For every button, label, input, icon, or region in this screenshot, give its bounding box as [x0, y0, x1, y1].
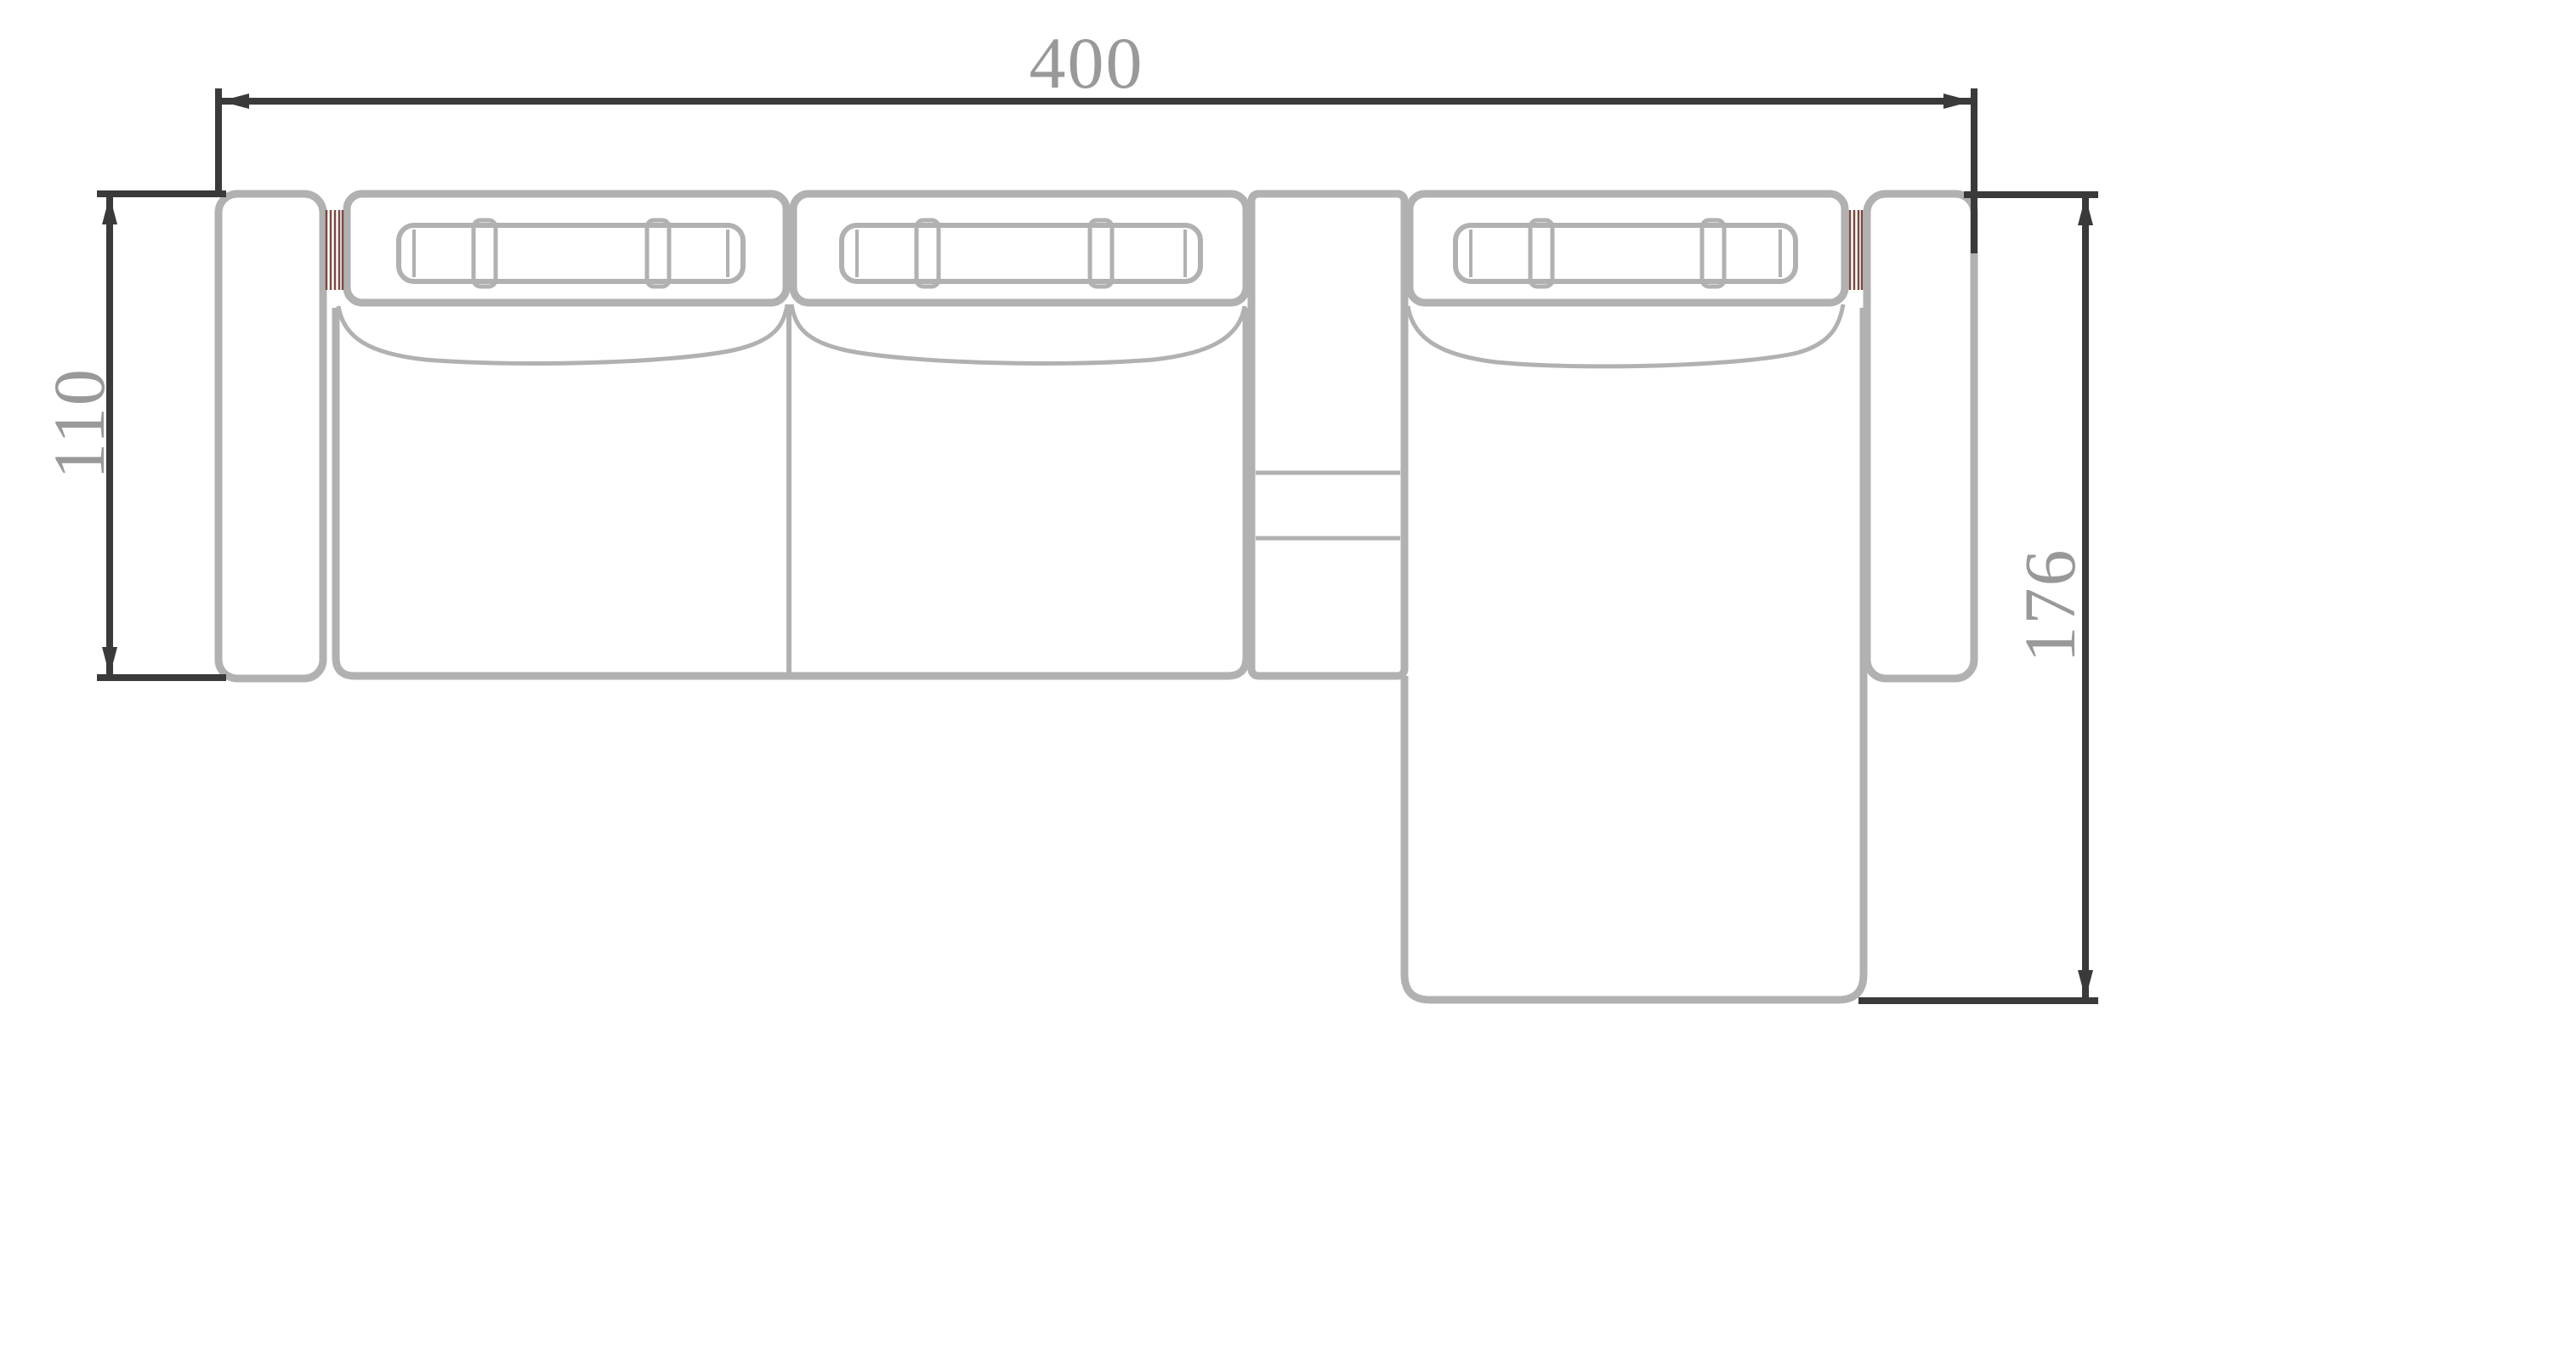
- seat-1-cushion-curve: [338, 304, 787, 363]
- sofa-technical-drawing-page: 400 110 176: [0, 0, 2576, 1368]
- depth-arrow-bottom: [102, 647, 117, 676]
- chaise-cushion-outline: [1404, 308, 1864, 1000]
- seat-2-backrest: [793, 194, 1246, 303]
- sofa-outline: [218, 194, 1974, 1000]
- center-console: [1251, 194, 1404, 676]
- seat-2-cushion-curve: [792, 304, 1245, 363]
- width-arrow-right: [1943, 94, 1972, 109]
- left-joint-hatch: [326, 210, 343, 290]
- seat-1-headrest: [399, 220, 743, 287]
- overall-width-label: 400: [1030, 22, 1144, 104]
- sofa-depth-dimension: 110: [38, 194, 226, 678]
- chaise-cushion-curve: [1408, 304, 1843, 366]
- right-armrest: [1867, 194, 1974, 678]
- seat-2-headrest-strap-right: [1090, 220, 1112, 287]
- chaise-depth-dimension: 176: [1858, 195, 2098, 1001]
- chaise-headrest-strap-right: [1702, 220, 1724, 287]
- chaise-arrow-top: [2078, 196, 2093, 225]
- seat-1-headrest-strap-right: [647, 220, 669, 287]
- sofa-technical-drawing: 400 110 176: [0, 0, 2576, 1368]
- chaise-headrest-strap-left: [1530, 220, 1552, 287]
- right-joint-hatch: [1850, 210, 1862, 290]
- seat-2-headrest: [842, 220, 1200, 287]
- seat-2-headrest-strap-left: [916, 220, 939, 287]
- depth-arrow-top: [102, 196, 117, 224]
- chaise-arrow-bottom: [2078, 970, 2093, 999]
- sofa-depth-label: 110: [38, 367, 120, 480]
- chaise-depth-label: 176: [2009, 548, 2091, 663]
- chaise-headrest: [1455, 220, 1796, 287]
- seat-1-headrest-strap-left: [474, 220, 496, 287]
- left-armrest: [218, 194, 323, 678]
- width-arrow-left: [220, 94, 249, 109]
